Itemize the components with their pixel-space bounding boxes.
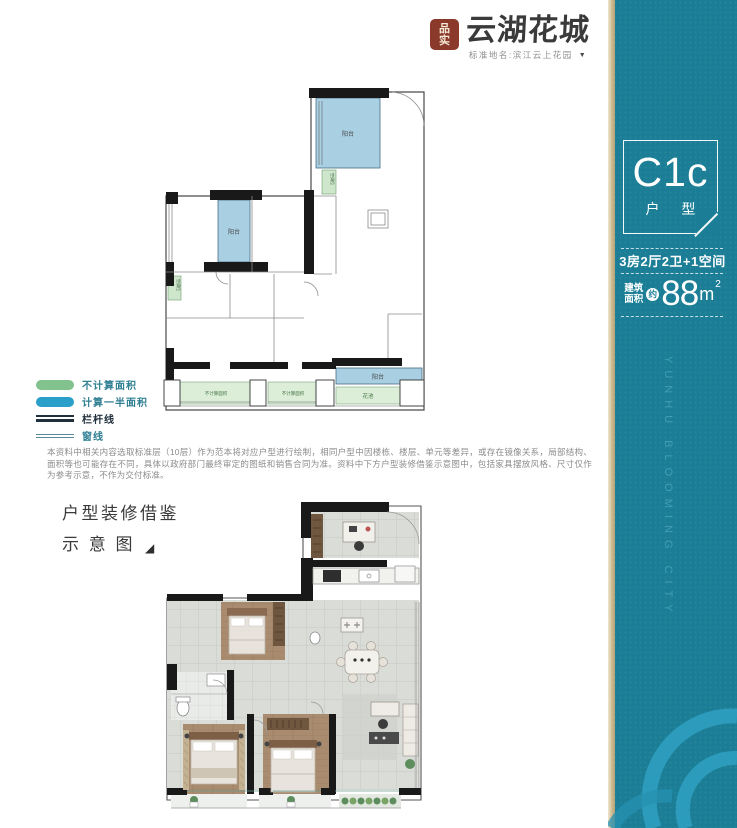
- bedroom-master: [183, 730, 245, 790]
- label-balcony-left: 阳台: [228, 228, 240, 236]
- legend-label: 窗线: [82, 428, 104, 443]
- brand-logo: 品 实 云湖花城 标准地名:滨江云上花园 ▼: [430, 15, 590, 61]
- unit-code: C1c: [624, 149, 717, 196]
- legend-label: 计算一半面积: [82, 394, 148, 409]
- label-flower-bed: 花池: [362, 392, 374, 400]
- page: 品 实 云湖花城 标准地名:滨江云上花园 ▼ C1c 户 型 3房2厅2卫+1空…: [0, 0, 737, 828]
- green-swatch-icon: [36, 380, 74, 390]
- banner-wave-decoration: [608, 668, 737, 828]
- brand-seal: 品 实: [430, 19, 459, 50]
- legend-label: 不计算面积: [82, 377, 137, 392]
- brand-subtitle: 标准地名:滨江云上花园: [469, 49, 573, 61]
- seal-char-2: 实: [439, 35, 450, 47]
- unit-code-box: C1c 户 型: [623, 140, 718, 234]
- label-balcony-top: 阳台: [342, 130, 354, 138]
- kitchen: [313, 566, 419, 584]
- section-title: 户型装修借鉴 示 意 图 ◢: [62, 499, 179, 555]
- side-banner: C1c 户 型 3房2厅2卫+1空间 建筑 面积 约 88 m 2 YUNHU …: [608, 0, 737, 828]
- dashed-divider-1: [621, 248, 723, 249]
- brand-name: 云湖花城: [465, 15, 591, 47]
- area-superscript: 2: [715, 279, 721, 290]
- railing-lines-icon: [36, 415, 74, 421]
- legend-label: 栏杆线: [82, 411, 115, 426]
- legend-item-railing: 栏杆线: [36, 410, 148, 427]
- section-title-line2: 示 意 图: [62, 530, 135, 555]
- floorplan-technical: 阳台 阳台 阳台 花池 不计算面积 不计算面积 空调位 空调位: [156, 86, 428, 422]
- floorplan-furnished: [163, 502, 459, 814]
- legend: 不计算面积 计算一半面积 栏杆线 窗线: [36, 376, 148, 444]
- label-no-area-1: 不计算面积: [205, 390, 228, 397]
- area-row: 建筑 面积 约 88 m 2: [608, 277, 737, 311]
- unit-box-chamfer: [696, 212, 720, 236]
- legend-item-no-area: 不计算面积: [36, 376, 148, 393]
- legend-item-half-area: 计算一半面积: [36, 393, 148, 410]
- blue-swatch-icon: [36, 397, 74, 407]
- area-approx-circle: 约: [646, 288, 659, 301]
- label-ac-2: 空调位: [176, 279, 182, 291]
- legend-item-window: 窗线: [36, 427, 148, 444]
- label-no-area-2: 不计算面积: [282, 390, 305, 397]
- triangle-down-icon: ▼: [579, 52, 587, 59]
- dashed-divider-3: [621, 316, 723, 317]
- disclaimer-text: 本资料中相关内容选取标准层（10层）作为范本将对应户型进行绘制，相同户型中因楼栋…: [47, 447, 592, 482]
- area-unit: m: [699, 284, 714, 305]
- area-value: 88: [661, 277, 698, 311]
- window-lines-icon: [36, 434, 74, 438]
- seal-char-1: 品: [439, 23, 450, 35]
- label-ac-1: 空调位: [330, 173, 336, 185]
- section-title-line1: 户型装修借鉴: [62, 499, 179, 524]
- area-prefix-2: 面积: [624, 294, 643, 305]
- corner-triangle-icon: ◢: [145, 541, 157, 555]
- label-balcony-bottom: 阳台: [372, 373, 384, 381]
- layout-description: 3房2厅2卫+1空间: [608, 251, 737, 270]
- area-prefix-1: 建筑: [624, 283, 643, 294]
